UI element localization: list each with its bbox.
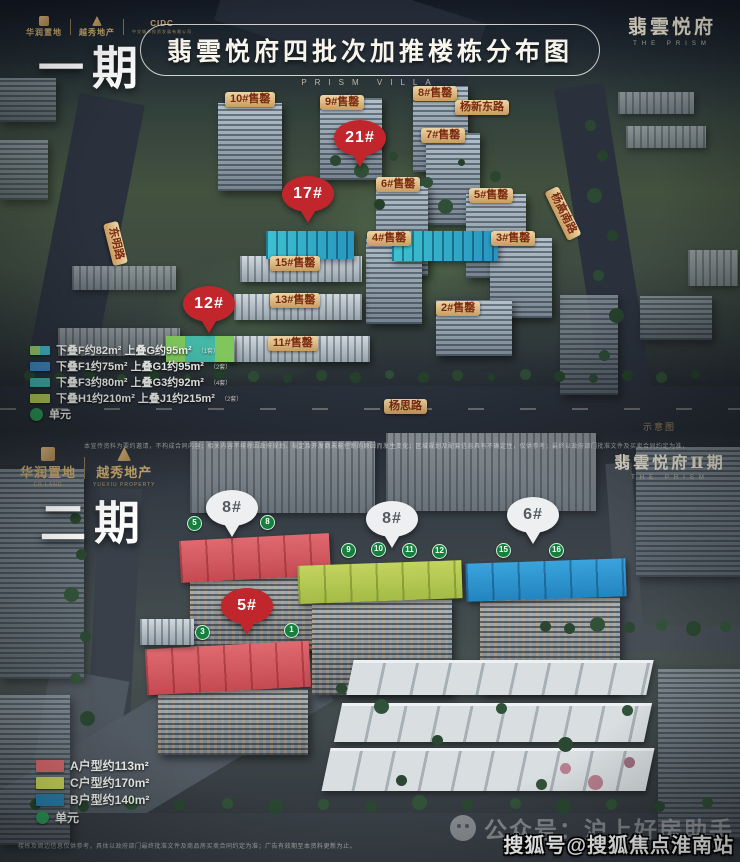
pin-label: 21#: [334, 120, 386, 156]
tree-cluster: [585, 120, 596, 131]
logo-yuexiu: 越秀地产 YUEXIU PROPERTY: [93, 447, 155, 488]
crland-logo-icon: [39, 16, 49, 26]
label-building-9: 9#售罄: [320, 95, 364, 110]
legend-swatch-f1g1: [30, 362, 50, 371]
pin-building-21: 21#: [334, 120, 386, 167]
legend-text: B户型约140m²: [70, 791, 149, 808]
phase2-disclaimer: 楼栋及周边信息仅供参考，具体以政府部门最终批准文件及商品房买卖合同约定为准；广告…: [18, 841, 538, 850]
legend-swatch-hj: [30, 394, 50, 403]
phase1-disclaimer: 本宣传资料为要约邀请，不构成合同内容；相关内容不排除因政府规划、规定及开发商未能…: [84, 441, 684, 450]
schematic-note: 示意图: [643, 420, 676, 433]
unit-circle-1: 1: [284, 623, 299, 638]
label-building-2: 2#售罄: [436, 301, 480, 316]
phase2-label: 二期: [40, 487, 148, 553]
context-tower: [560, 295, 618, 395]
legend-unit-row: 单元: [36, 809, 79, 826]
label-building-5: 5#售罄: [469, 188, 513, 203]
brand-subname: THE PRISM: [612, 41, 732, 47]
label-building-15: 15#售罄: [270, 256, 320, 271]
legend-row: 下叠F1约75m² 上叠G1约95m² （2套）: [30, 358, 231, 374]
label-building-6: 6#售罄: [376, 177, 420, 192]
lane-markings: [0, 408, 740, 410]
teal-roof-building-17: [266, 231, 354, 259]
pin-building-6: 6#: [507, 497, 559, 544]
phase2-section: 5 8 9 10 11 12 15 16 3 1 8# 8# 6# 5# 本宣传…: [0, 433, 740, 862]
title-box: 翡雲悦府四批次加推楼栋分布图: [140, 24, 600, 76]
legend-swatch-c: [36, 777, 64, 789]
unit-circle-9: 9: [341, 543, 356, 558]
label-building-7: 7#售罄: [421, 128, 465, 143]
sohu-watermark: 搜狐号@搜狐焦点淮南站: [503, 829, 734, 858]
context-building: [626, 126, 706, 148]
label-building-8: 8#售罄: [413, 86, 457, 101]
crland-logo-icon: [41, 447, 55, 461]
unit-circle-3: 3: [195, 625, 210, 640]
tree-cluster: [336, 683, 347, 694]
pin-building-8-west: 8#: [206, 490, 258, 537]
unit-circle-15: 15: [496, 543, 511, 558]
legend-swatch-fg: [30, 346, 50, 355]
blue-roof-building-6: [465, 558, 626, 602]
wechat-icon: [450, 815, 476, 841]
label-building-13: 13#售罄: [270, 293, 320, 308]
phase1-label: 一期: [38, 32, 146, 98]
unit-circle-12: 12: [432, 544, 447, 559]
pin-label: 5#: [221, 588, 273, 624]
legend-swatch-b: [36, 794, 64, 806]
pin-label: 6#: [507, 497, 559, 533]
pin-building-12: 12#: [183, 286, 235, 333]
pin-label: 8#: [206, 490, 258, 526]
pin-building-17: 17#: [282, 176, 334, 223]
label-building-4: 4#售罄: [367, 231, 411, 246]
legend-row: 下叠H1约210m² 上叠J1约215m² （2套）: [30, 390, 242, 406]
page-subtitle: PRISM VILLA: [301, 78, 438, 87]
slab-west: [72, 266, 176, 290]
logo-crland-text: 华润置地: [20, 462, 76, 481]
legend-text: 下叠F3约80m² 上叠G3约92m²: [56, 374, 204, 390]
pin-tail-icon: [524, 529, 542, 544]
context-building: [640, 296, 712, 340]
pin-building-5: 5#: [221, 588, 273, 635]
unit-circle-8: 8: [260, 515, 275, 530]
townhouse-row: [321, 748, 654, 791]
tree-row: [540, 621, 551, 632]
tower-10: [218, 103, 282, 191]
logo-divider: [84, 457, 85, 479]
pin-label: 17#: [282, 176, 334, 212]
unit-circle-icon: [36, 811, 49, 824]
legend-unit-text: 单元: [55, 809, 79, 826]
legend-swatch-f3g3: [30, 378, 50, 387]
legend-unit-row: 单元: [30, 406, 71, 422]
pin-label: 8#: [366, 501, 418, 537]
brand-subname: THE PRISM: [606, 475, 734, 481]
brand-logo-phase2: 翡雲悦府Ⅱ期 THE PRISM: [606, 449, 734, 481]
legend-row-a: A户型约113m²: [36, 757, 149, 774]
legend-row-b: B户型约140m²: [36, 791, 149, 808]
label-building-10: 10#售罄: [225, 92, 275, 107]
phase1-section: 10#售罄 9#售罄 8#售罄 7#售罄 6#售罄 5#售罄 4#售罄 3#售罄…: [0, 0, 740, 433]
unit-circle-16: 16: [549, 543, 564, 558]
legend-row: 下叠F3约80m² 上叠G3约92m² （4套）: [30, 374, 231, 390]
legend-text: A户型约113m²: [70, 757, 149, 774]
road-label-yangxindong: 杨新东路: [455, 100, 509, 115]
context-building: [618, 92, 694, 114]
legend-text: 下叠F约82m² 上叠G约95m²: [56, 342, 192, 358]
pin-tail-icon: [238, 620, 256, 635]
label-building-3: 3#售罄: [491, 231, 535, 246]
legend-text: 下叠F1约75m² 上叠G1约95m²: [56, 358, 204, 374]
legend-note: （4套）: [210, 378, 231, 387]
blossom-trees: [560, 763, 571, 774]
legend-note: （2套）: [221, 394, 242, 403]
legend-row-c: C户型约170m²: [36, 774, 149, 791]
townhouse-row: [346, 660, 653, 695]
legend-swatch-a: [36, 760, 64, 772]
logo-yuexiu-text: 越秀地产: [96, 462, 152, 481]
legend-row: 下叠F约82m² 上叠G约95m² （1套）: [30, 342, 219, 358]
logo-crland: 华润置地 CR LAND: [20, 447, 76, 488]
tower-body-5: [158, 689, 308, 755]
pin-building-8-mid: 8#: [366, 501, 418, 548]
legend-text: C户型约170m²: [70, 774, 149, 791]
yuexiu-logo-icon: [117, 447, 131, 461]
page-title: 翡雲悦府四批次加推楼栋分布图: [167, 39, 573, 66]
brand-name: 翡雲悦府: [612, 12, 732, 39]
legend-note: （2套）: [210, 362, 231, 371]
developer-logos-phase2: 华润置地 CR LAND 越秀地产 YUEXIU PROPERTY: [20, 447, 155, 488]
podium: [140, 619, 194, 645]
red-roof-building-5: [145, 641, 311, 696]
townhouse-row: [334, 703, 652, 742]
unit-circle-icon: [30, 408, 43, 421]
legend-note: （1套）: [198, 346, 219, 355]
poster-canvas: 10#售罄 9#售罄 8#售罄 7#售罄 6#售罄 5#售罄 4#售罄 3#售罄…: [0, 0, 740, 862]
legend-unit-text: 单元: [49, 406, 71, 422]
label-building-11: 11#售罄: [268, 336, 318, 351]
unit-circle-5: 5: [187, 516, 202, 531]
brand-logo-phase1: 翡雲悦府 THE PRISM: [612, 12, 732, 47]
pin-label: 12#: [183, 286, 235, 322]
green-roof-building: [297, 560, 462, 604]
pin-tail-icon: [383, 533, 401, 548]
context-building: [0, 140, 48, 200]
context-building: [688, 250, 738, 286]
pin-tail-icon: [223, 522, 241, 537]
road-label-yangsi: 杨思路: [384, 399, 427, 414]
brand-name: 翡雲悦府Ⅱ期: [606, 449, 734, 473]
yuexiu-logo-icon: [92, 16, 102, 26]
legend-text: 下叠H1约210m² 上叠J1约215m²: [56, 390, 215, 406]
